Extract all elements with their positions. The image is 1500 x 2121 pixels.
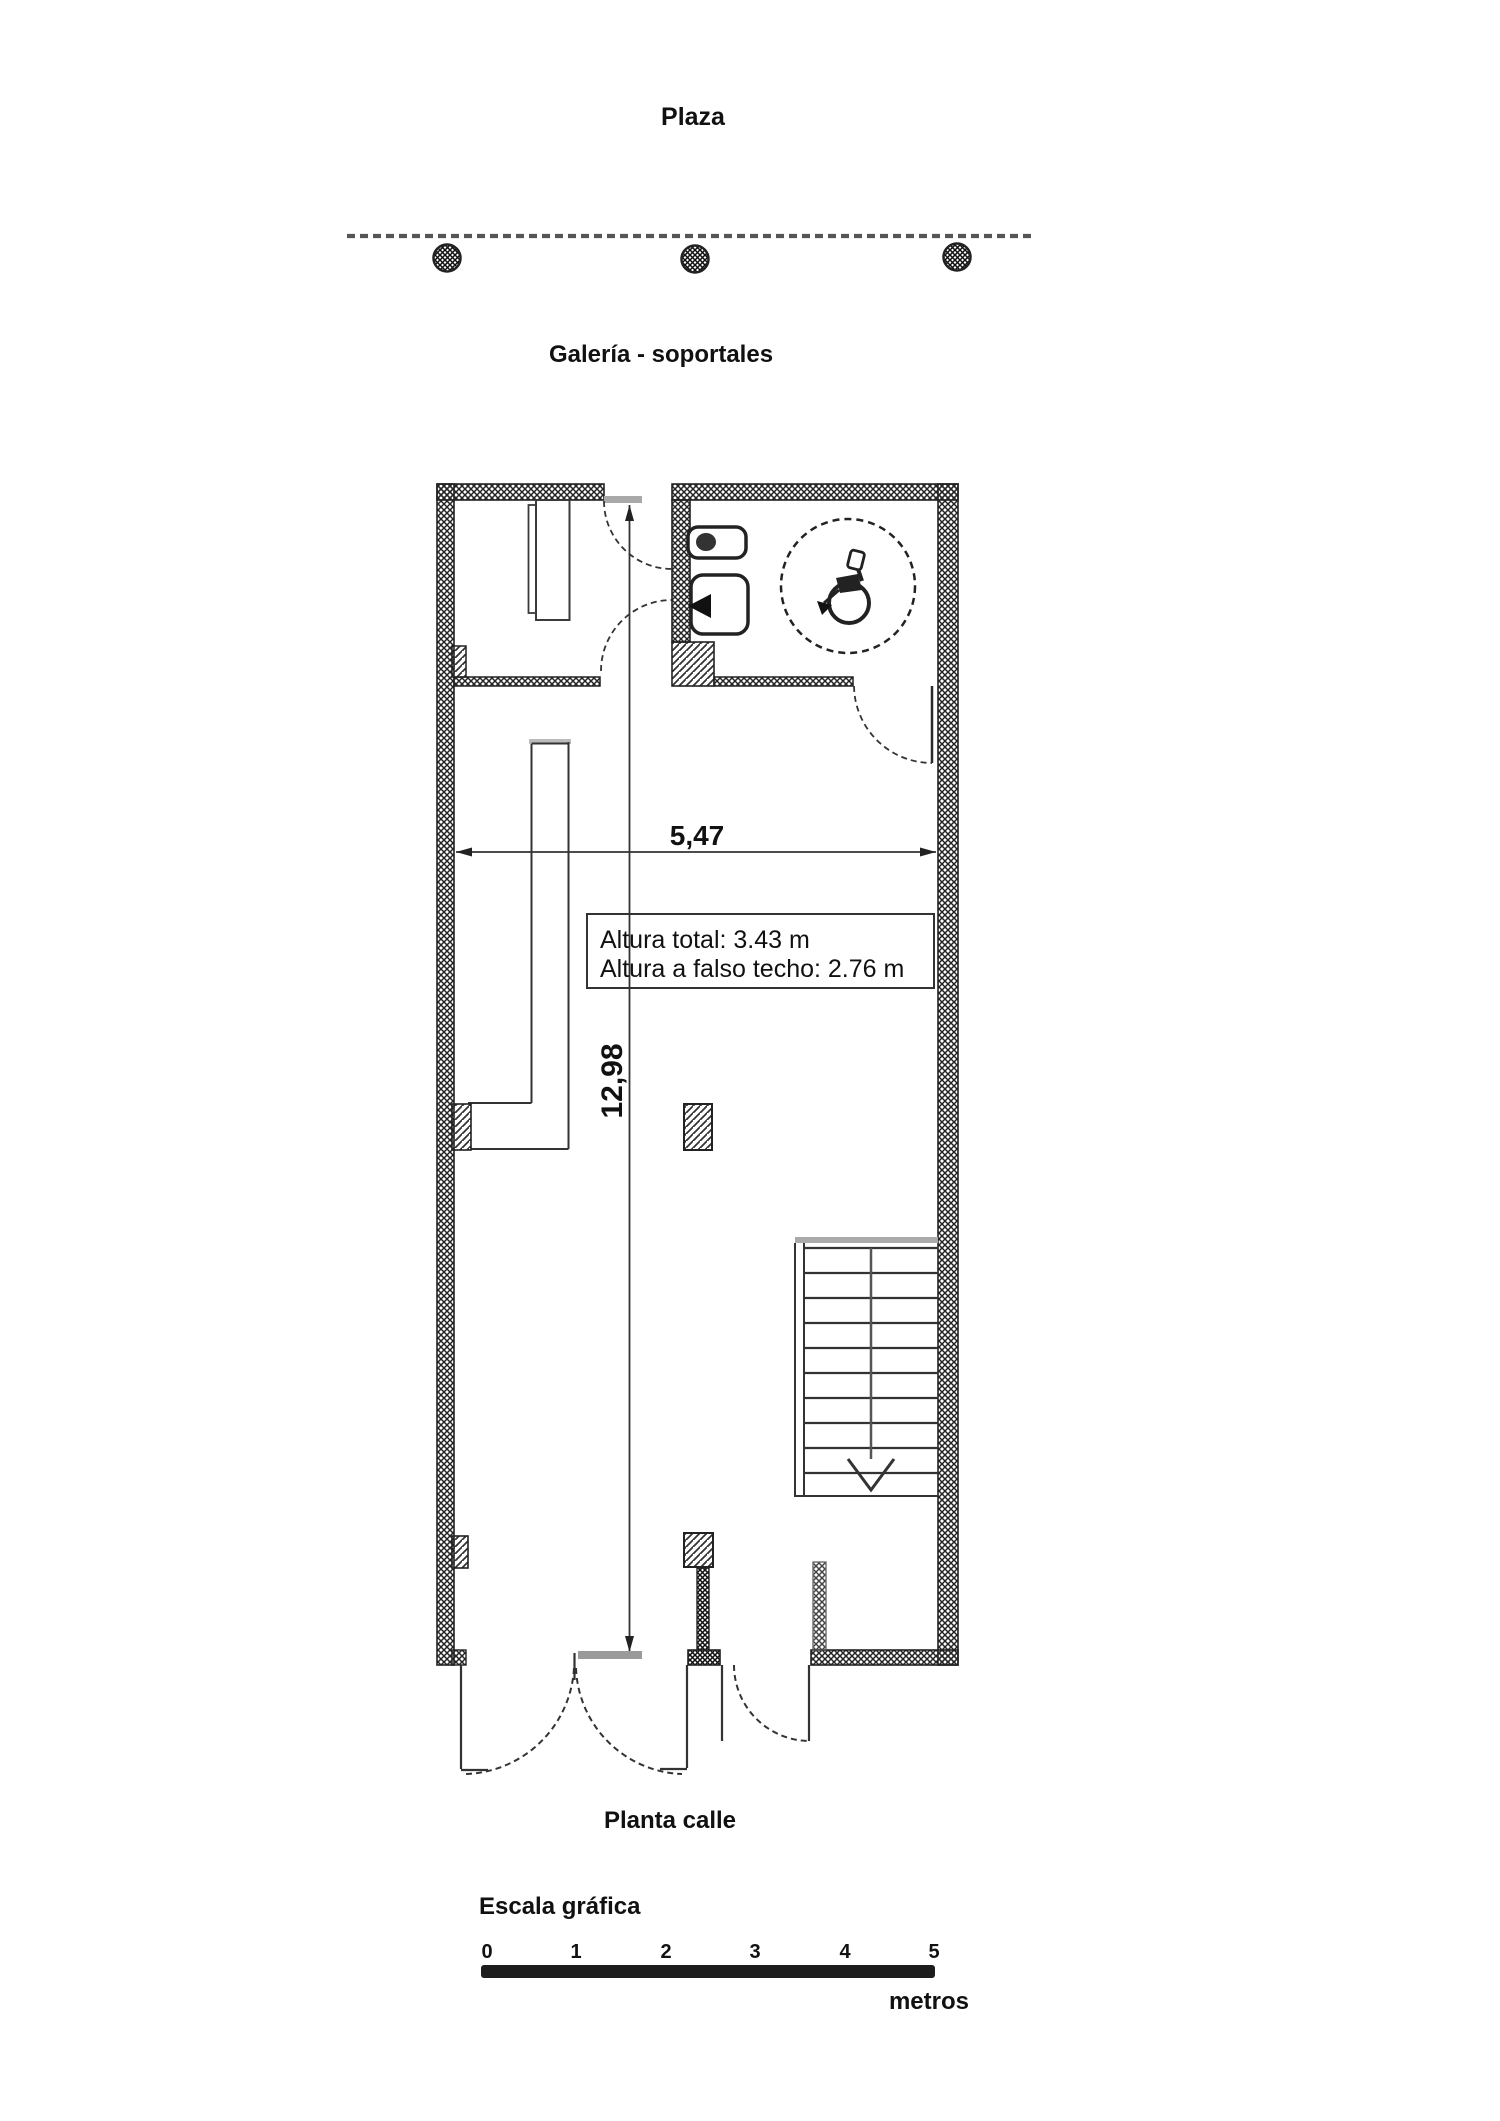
svg-text:4: 4 xyxy=(839,1941,851,1963)
svg-text:5: 5 xyxy=(928,1941,939,1963)
svg-text:5,47: 5,47 xyxy=(670,820,725,851)
svg-text:metros: metros xyxy=(889,1988,969,2015)
svg-text:3: 3 xyxy=(749,1941,760,1963)
svg-text:Plaza: Plaza xyxy=(661,103,726,131)
svg-text:Altura a falso techo: 2.76 m: Altura a falso techo: 2.76 m xyxy=(600,955,904,983)
svg-text:Escala gráfica: Escala gráfica xyxy=(479,1893,641,1920)
svg-text:Altura total: 3.43 m: Altura total: 3.43 m xyxy=(600,926,810,954)
svg-text:2: 2 xyxy=(660,1941,671,1963)
svg-text:0: 0 xyxy=(481,1941,492,1963)
svg-text:12,98: 12,98 xyxy=(596,1043,629,1118)
svg-text:Planta calle: Planta calle xyxy=(604,1807,736,1834)
svg-text:Galería - soportales: Galería - soportales xyxy=(549,341,773,368)
svg-text:1: 1 xyxy=(570,1941,581,1963)
